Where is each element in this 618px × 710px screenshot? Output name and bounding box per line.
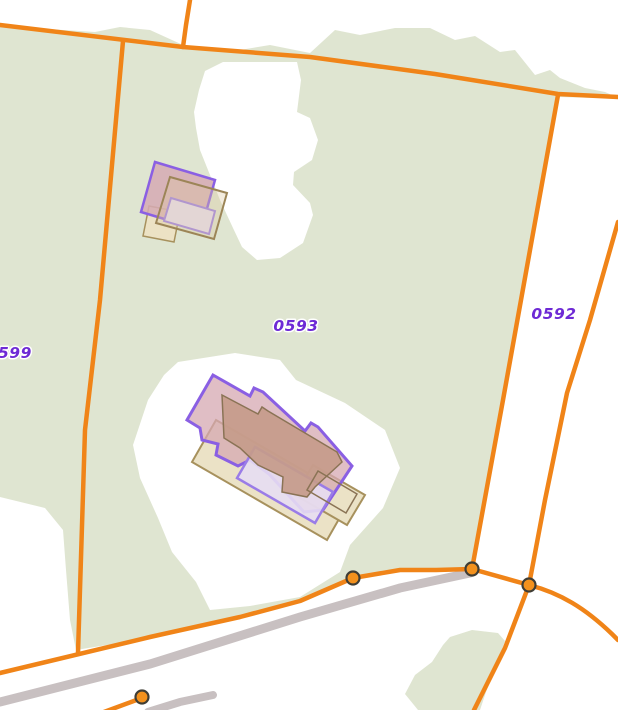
- map-canvas[interactable]: 599 0593 0592: [0, 0, 618, 710]
- parcel-label-0592[interactable]: 0592: [531, 305, 576, 323]
- parcel-label-0593[interactable]: 0593: [273, 317, 318, 335]
- map-viewport[interactable]: 599 0593 0592: [0, 0, 618, 710]
- vertex-dot[interactable]: [136, 691, 149, 704]
- parcel-label-0599[interactable]: 599: [0, 344, 32, 362]
- vertex-dot[interactable]: [347, 572, 360, 585]
- vertex-dot[interactable]: [466, 563, 479, 576]
- vertex-dot[interactable]: [523, 579, 536, 592]
